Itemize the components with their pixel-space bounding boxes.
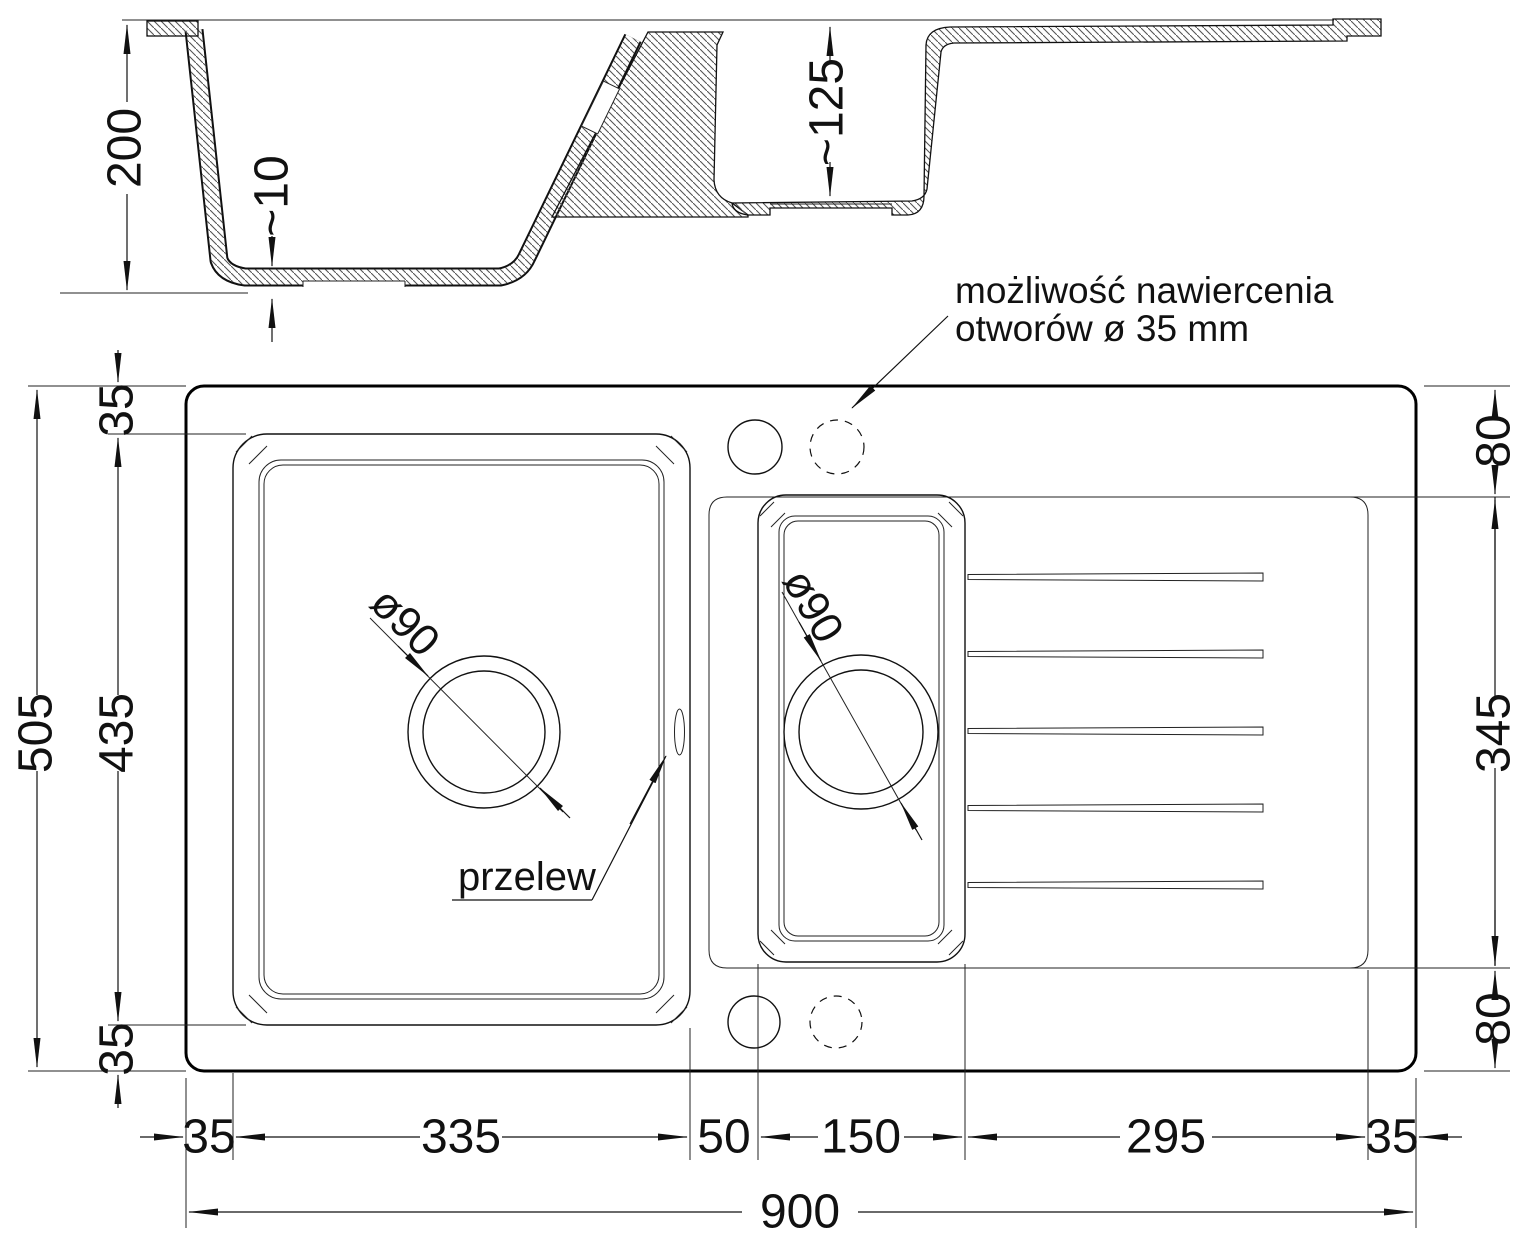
dim-bowl-width-335: 335 [421, 1111, 501, 1164]
dim-small-bowl-depth-125: ~125 [801, 27, 854, 196]
main-bowl [233, 434, 690, 1025]
dim-divider-50: 50 [697, 1111, 750, 1164]
dim-rim-top-35: 35 [91, 383, 144, 436]
svg-text:ø90: ø90 [773, 561, 853, 651]
section-bottom-recess [303, 281, 405, 298]
small-bowl-corner-chamfers [760, 502, 963, 955]
sink-dimension-drawing: 200 ~10 ~125 [0, 0, 1534, 1242]
drainboard-outline [1350, 497, 1368, 968]
dim-rim-bottom-35: 35 [91, 1022, 144, 1075]
svg-text:ø90: ø90 [361, 578, 449, 666]
dim-main-drain-90: ø90 [361, 578, 570, 818]
dim-deck-bottom-80: 80 [1468, 992, 1521, 1045]
optional-hole-bottom [810, 996, 862, 1048]
small-bowl [758, 495, 965, 962]
dim-rim-right-35: 35 [1365, 1111, 1418, 1164]
dim-drainer-length-345: 345 [1468, 693, 1521, 773]
dim-deck-top-80: 80 [1468, 414, 1521, 467]
dim-bowl-length-435: 435 [91, 693, 144, 773]
plan-view: ø90 ø90 przelew możliwość nawiercenia ot… [10, 270, 1521, 1239]
dim-overall-900: 900 [760, 1186, 840, 1239]
dim-bottom-thickness-10: ~10 [246, 155, 299, 342]
overflow-callout: przelew [452, 756, 666, 900]
overflow-slot [675, 709, 685, 755]
svg-text:~10: ~10 [246, 155, 299, 236]
dims-left: 505 435 35 35 [10, 350, 247, 1108]
section-left-rim-step [147, 21, 198, 36]
faucet-hole-top [728, 420, 782, 474]
dim-small-bowl-150: 150 [821, 1111, 901, 1164]
drainboard-grooves [968, 573, 1263, 889]
main-bowl-corner-chamfers [236, 436, 687, 1023]
technical-drawing-page: 200 ~10 ~125 [0, 0, 1534, 1242]
dims-right: 80 345 80 [1416, 386, 1521, 1071]
faucet-hole-bottom [728, 996, 780, 1048]
dim-overall-505: 505 [10, 693, 63, 773]
svg-text:~125: ~125 [801, 58, 854, 166]
optional-hole-top [810, 420, 864, 474]
overflow-label: przelew [458, 855, 596, 899]
section-main-bowl-wall [194, 30, 633, 277]
svg-text:200: 200 [99, 108, 152, 188]
dim-drainer-width-295: 295 [1126, 1111, 1206, 1164]
note-line-2: otworów ø 35 mm [955, 308, 1249, 349]
dim-rim-left-35: 35 [182, 1111, 235, 1164]
dims-bottom: 35 335 50 150 295 35 900 [140, 964, 1462, 1239]
note-line-1: możliwość nawiercenia [955, 270, 1334, 311]
